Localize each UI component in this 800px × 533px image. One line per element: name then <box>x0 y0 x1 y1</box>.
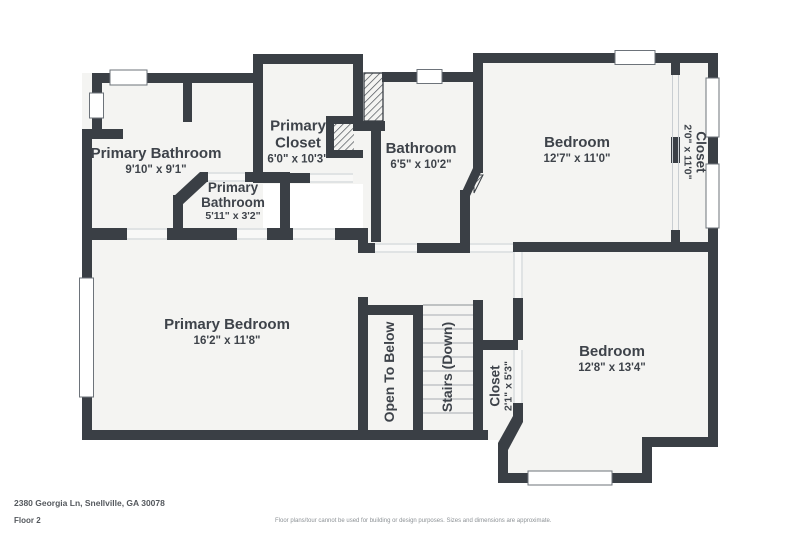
room-dims: 2'1" x 5'3" <box>503 361 517 411</box>
room-name: Closet <box>693 124 708 179</box>
room-dims: 12'8" x 13'4" <box>578 361 646 376</box>
room-dims: 6'5" x 10'2" <box>386 158 457 173</box>
room-name: Closet <box>488 361 503 411</box>
floor-areas <box>82 53 718 483</box>
room-name: Stairs (Down) <box>440 322 456 412</box>
room-dims: 16'2" x 11'8" <box>164 334 290 349</box>
window-primary-bathroom-left <box>90 93 104 118</box>
room-name: Bedroom <box>578 344 646 361</box>
room-label-bedroom-1: Bedroom 12'7" x 11'0" <box>544 135 611 167</box>
room-label-primary-closet: Primary Closet 6'0" x 10'3" <box>256 119 340 168</box>
room-label-bedroom-2: Bedroom 12'8" x 13'4" <box>578 344 646 376</box>
room-label-closet-small: Closet 2'1" x 5'3" <box>488 361 517 411</box>
window-primary-bathroom-top <box>110 70 147 85</box>
room-name: Primary Bathroom <box>91 146 222 163</box>
room-name: Primary Bedroom <box>164 317 290 334</box>
room-dims: 6'0" x 10'3" <box>256 152 340 167</box>
address-text: 2380 Georgia Ln, Snellville, GA 30078 <box>14 498 165 508</box>
room-label-primary-bathroom: Primary Bathroom 9'10" x 9'1" <box>91 146 222 178</box>
room-label-bathroom: Bathroom 6'5" x 10'2" <box>386 141 457 173</box>
room-label-primary-bathroom-small: Primary Bathroom 5'11" x 3'2" <box>187 180 279 224</box>
hatch-chase-strip <box>364 73 383 121</box>
window-primary-bedroom-left <box>80 278 94 397</box>
room-label-stairs-down: Stairs (Down) <box>440 322 456 412</box>
floor-label: Floor 2 <box>14 516 41 525</box>
room-name: Primary Closet <box>256 119 340 153</box>
room-label-closet-right: Closet 2'0" x 11'0" <box>680 124 709 179</box>
window-bathroom-top <box>417 70 442 84</box>
floor-plan-drawing <box>0 0 800 533</box>
room-dims: 2'0" x 11'0" <box>680 124 694 179</box>
room-dims: 5'11" x 3'2" <box>187 210 279 224</box>
window-bedroom1-top <box>615 51 655 65</box>
room-dims: 9'10" x 9'1" <box>91 163 222 178</box>
disclaimer-text: Floor plans/tour cannot be used for buil… <box>275 518 552 524</box>
window-bedroom2-bottom <box>528 471 612 485</box>
floor-plan-page: Primary Bathroom 9'10" x 9'1" Primary Cl… <box>0 0 800 533</box>
room-dims: 12'7" x 11'0" <box>544 152 611 167</box>
room-label-open-to-below: Open To Below <box>382 322 398 423</box>
room-name: Bathroom <box>386 141 457 158</box>
room-label-primary-bedroom: Primary Bedroom 16'2" x 11'8" <box>164 317 290 349</box>
room-name: Primary Bathroom <box>187 180 279 210</box>
room-name: Open To Below <box>382 322 398 423</box>
room-name: Bedroom <box>544 135 611 152</box>
